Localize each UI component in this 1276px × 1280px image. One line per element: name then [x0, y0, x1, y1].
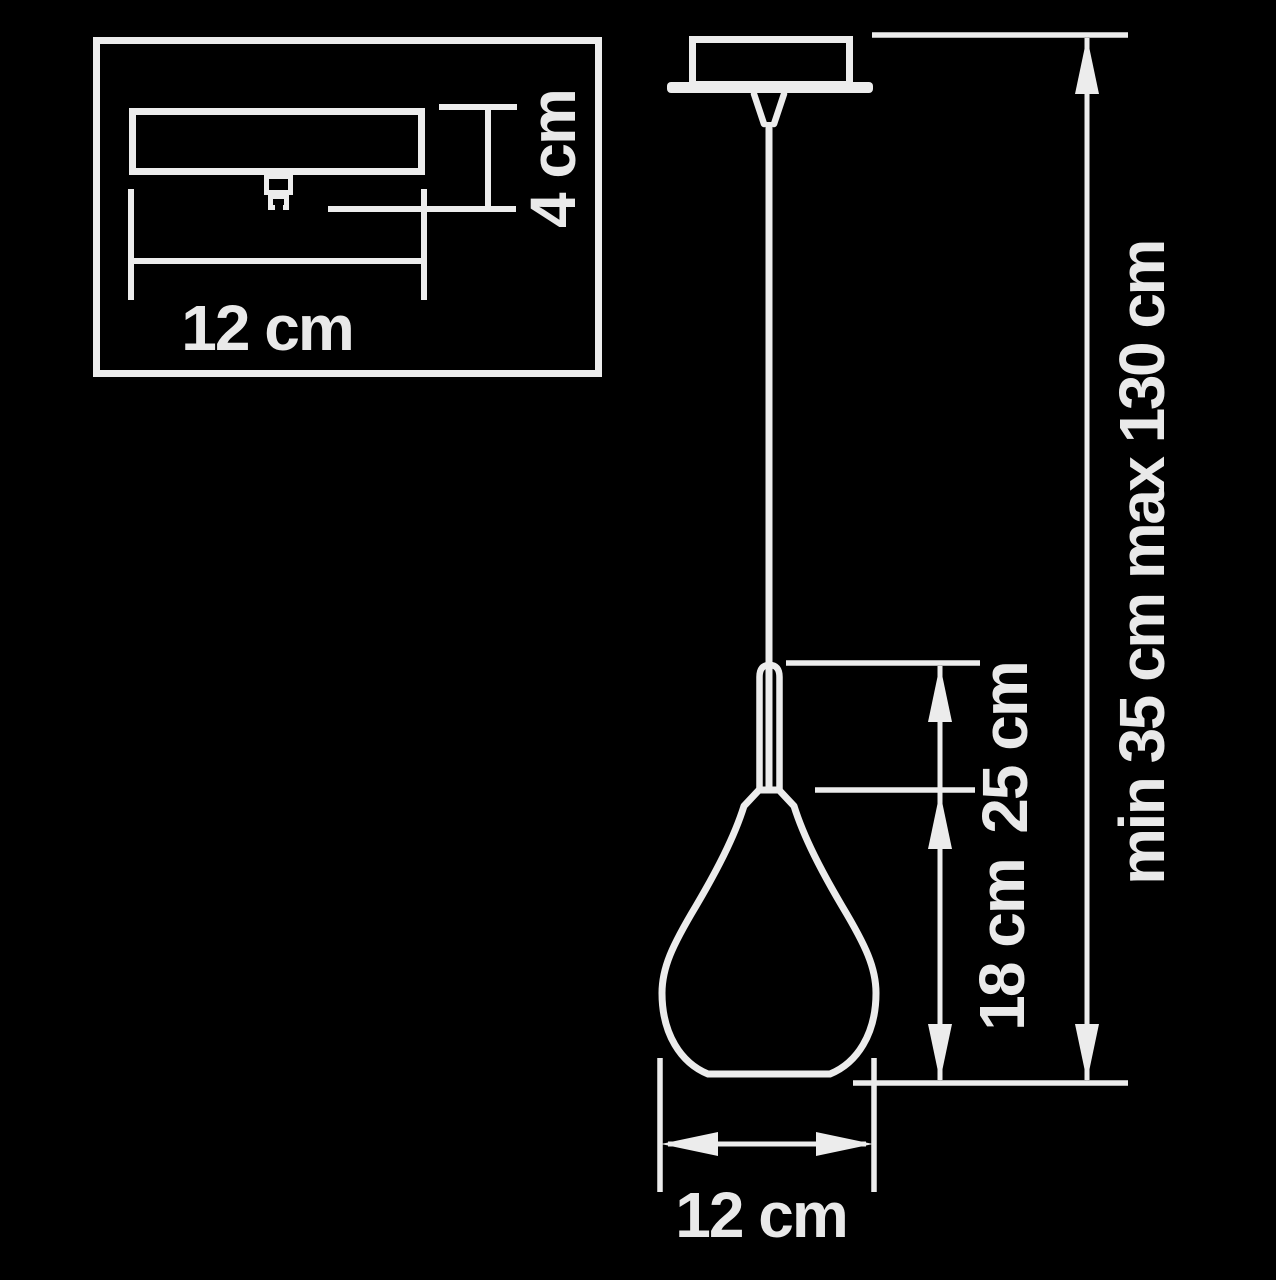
arrowhead-up-overall — [1075, 37, 1099, 94]
shade-height-label: 18 cm — [966, 859, 1038, 1030]
inset-cable-grip-top — [267, 177, 291, 193]
arrowhead-right-width — [816, 1132, 873, 1156]
inset-height-label: 4 cm — [517, 90, 589, 228]
inset-canopy-detail: 12 cm 4 cm — [97, 41, 599, 374]
overall-height-label: min 35 cm max 130 cm — [1106, 241, 1178, 885]
diagram-svg: 12 cm 4 cm — [0, 0, 1276, 1280]
inset-cable-grip — [267, 177, 291, 211]
inset-width-dimension: 12 cm — [131, 189, 424, 364]
suspension-to-bottom-label: 25 cm — [969, 662, 1041, 833]
pendant-lamp-drawing — [662, 40, 876, 1075]
inset-width-label: 12 cm — [181, 292, 352, 364]
inset-cable-grip-notch — [275, 203, 283, 210]
arrowhead-down-overall — [1075, 1024, 1099, 1081]
arrowhead-left-width — [661, 1132, 718, 1156]
arrowhead-down-shade — [928, 1024, 952, 1081]
dimension-annotations: 25 cm 18 cm min 35 cm max 130 cm 12 cm — [660, 35, 1178, 1251]
arrowhead-up-18cm — [928, 792, 952, 849]
canopy-box — [693, 40, 850, 85]
arrowhead-up-25cm — [928, 665, 952, 722]
canopy-strain-relief-cone — [754, 94, 784, 124]
canopy-plate — [667, 82, 873, 93]
teardrop-shade-outline — [662, 790, 876, 1074]
inset-canopy-box — [133, 112, 422, 172]
pendant-lamp-dimension-diagram: 12 cm 4 cm — [0, 0, 1276, 1280]
shade-width-label: 12 cm — [675, 1179, 846, 1251]
